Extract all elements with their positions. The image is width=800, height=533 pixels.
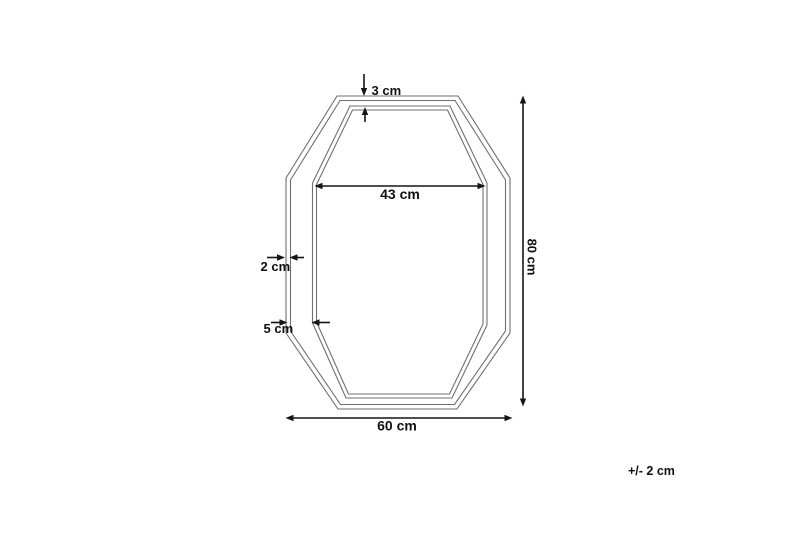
inner-frame-outer-edge <box>313 106 488 398</box>
top-gap-label: 3 cm <box>372 83 402 98</box>
dimension-overall-height: 80 cm <box>520 96 540 407</box>
inner-frame-inner-edge <box>317 110 484 394</box>
outer-frame-outline <box>286 96 510 409</box>
dimension-inner-width: 43 cm <box>315 183 486 202</box>
overall-height-label: 80 cm <box>525 239 540 276</box>
arrow-up-icon <box>520 96 526 104</box>
arrow-right-icon <box>478 183 486 189</box>
arrow-right-icon <box>505 415 513 421</box>
inner-width-label: 43 cm <box>380 186 420 202</box>
tolerance-note: +/- 2 cm <box>628 464 675 478</box>
dimension-frame-thickness: 2 cm <box>261 254 305 274</box>
dimension-top-gap: 3 cm <box>361 74 401 122</box>
frame-thickness-label: 2 cm <box>261 259 291 274</box>
arrow-up-icon <box>362 107 368 115</box>
arrow-left-icon <box>286 415 294 421</box>
outer-frame-outer-edge <box>286 96 510 409</box>
arrow-left-icon <box>315 183 323 189</box>
mirror-dimension-diagram: 3 cm 43 cm 2 cm 5 cm <box>0 0 800 533</box>
dimension-frame-border: 5 cm <box>264 319 331 336</box>
frame-border-label: 5 cm <box>264 321 294 336</box>
arrow-down-icon <box>520 399 526 407</box>
dimension-overall-width: 60 cm <box>286 415 513 434</box>
diagram-canvas: 3 cm 43 cm 2 cm 5 cm <box>0 0 800 533</box>
inner-frame-outline <box>313 106 488 398</box>
arrow-down-icon <box>361 88 367 96</box>
overall-width-label: 60 cm <box>377 418 417 434</box>
outer-frame-inner-edge <box>291 101 506 405</box>
